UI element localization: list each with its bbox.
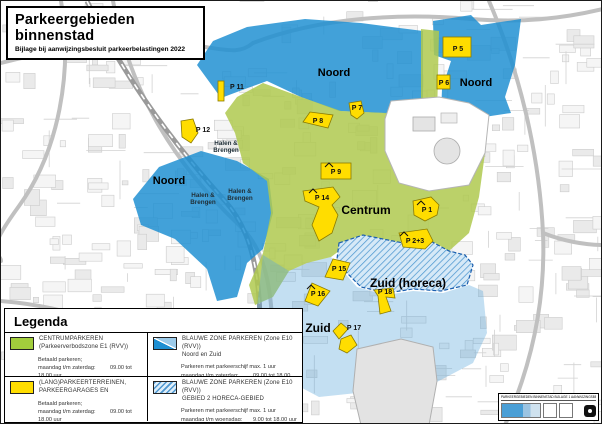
halen-brengen-label: Halen & [214, 140, 238, 147]
legend-entry-horeca-gebied: BLAUWE ZONE PARKEREN (Zone E10 (RVV)) GE… [148, 377, 302, 421]
parking-label-p18: P 18 [378, 289, 392, 296]
legend-entry-name: BLAUWE ZONE PARKEREN (Zone E10 (RVV)) [182, 380, 299, 396]
parking-area-p11 [218, 81, 224, 101]
legend-heading: Legenda [5, 309, 302, 332]
parking-label-p6: P 6 [439, 80, 449, 87]
zone-label-noord-top: Noord [318, 67, 350, 79]
harbor-area [353, 339, 437, 424]
legend-rule: Betaald parkeren; [38, 356, 110, 364]
parking-label-p12: P 12 [196, 127, 210, 134]
legend-rule: Parkeren met parkeerschijf max. 1 uur [181, 363, 276, 371]
legend-rule-value: 9.00 tot 18.00 uur [253, 417, 297, 422]
legend-entry-name: CENTRUMPARKEREN [39, 336, 128, 344]
legend-entry-name: Noord en Zuid [182, 352, 299, 360]
legend-swatch-blauwe-zone [153, 337, 177, 350]
legend-rule: maandag t/m woensdag: [181, 416, 253, 422]
page-title: Parkeergebieden binnenstad [15, 12, 197, 44]
zone-label-noord-right: Noord [460, 77, 492, 89]
title-box: Parkeergebieden binnenstad Bijlage bij a… [6, 6, 205, 60]
zone-label-centrum: Centrum [341, 203, 390, 217]
legend-swatch-horeca-gebied [153, 381, 177, 394]
halen-brengen-label: Brengen [227, 195, 253, 202]
legend: Legenda CENTRUMPARKEREN (Parkeerverbodsz… [4, 308, 303, 423]
attribution-cell [543, 403, 557, 418]
legend-entry-name: PARKEERGARAGES EN [39, 388, 126, 396]
legend-rule: maandag t/m zaterdag: [38, 408, 110, 416]
halen-brengen-label: Brengen [213, 147, 239, 154]
legend-rule: Betaald parkeren; [38, 400, 110, 408]
zone-label-zuid: Zuid [305, 321, 330, 335]
parking-label-p9: P 9 [331, 169, 341, 176]
halen-brengen-label: Halen & [191, 192, 215, 199]
parking-label-p16: P 16 [311, 291, 325, 298]
parking-label-p7: P 7 [352, 105, 362, 112]
zone-label-zuid-horeca: Zuid (horeca) [370, 276, 446, 290]
legend-entry-blauwe-zone: BLAUWE ZONE PARKEREN (Zone E10 (RVV)) No… [148, 333, 302, 377]
attribution-title: PARKEERGEBIEDEN BINNENSTAD BIJLAGE 1 AAN… [501, 395, 596, 401]
legend-entry-name: (LANG)PARKEERTERREINEN, [39, 380, 126, 388]
municipality-logo-icon [584, 405, 596, 417]
legend-entry-parkeerterreinen: (LANG)PARKEERTERREINEN, PARKEERGARAGES E… [5, 377, 148, 421]
legend-entry-name: GEBIED 2 HORECA-GEBIED [182, 396, 299, 404]
legend-rule: Parkeren met parkeerschijf max. 1 uur [181, 407, 276, 415]
zone-label-noord-west: Noord [153, 175, 185, 187]
halen-brengen-label: Brengen [190, 199, 216, 206]
attribution-box: PARKEERGEBIEDEN BINNENSTAD BIJLAGE 1 AAN… [498, 393, 599, 421]
attribution-cell [559, 403, 573, 418]
legend-entry-name: BLAUWE ZONE PARKEREN (Zone E10 (RVV)) [182, 336, 299, 352]
parking-label-p17: P 17 [347, 325, 361, 332]
parking-label-p2-3: P 2+3 [406, 238, 424, 245]
halen-brengen-label: Halen & [228, 188, 252, 195]
parking-label-p11: P 11 [230, 84, 244, 91]
legend-grid: CENTRUMPARKEREN (Parkeerverbodszone E1 (… [5, 332, 302, 421]
legend-swatch-centrum [10, 337, 34, 350]
map-page: Noord Noord Noord Centrum Zuid (horeca) … [0, 0, 602, 424]
legend-rule: maandag t/m zaterdag: [38, 364, 110, 372]
legend-entry-centrum: CENTRUMPARKEREN (Parkeerverbodszone E1 (… [5, 333, 148, 377]
parking-label-p8: P 8 [313, 118, 323, 125]
legend-swatch-parkeerterreinen [10, 381, 34, 394]
parking-label-p14: P 14 [315, 195, 329, 202]
parking-label-p1: P 1 [422, 207, 432, 214]
park-cutout [385, 97, 489, 191]
page-subtitle: Bijlage bij aanwijzingsbesluit parkeerbe… [15, 46, 197, 53]
legend-entry-name: (Parkeerverbodszone E1 (RVV)) [39, 344, 128, 352]
map-thumbnail [501, 403, 541, 418]
parking-label-p5: P 5 [453, 46, 463, 53]
parking-label-p15: P 15 [332, 266, 346, 273]
